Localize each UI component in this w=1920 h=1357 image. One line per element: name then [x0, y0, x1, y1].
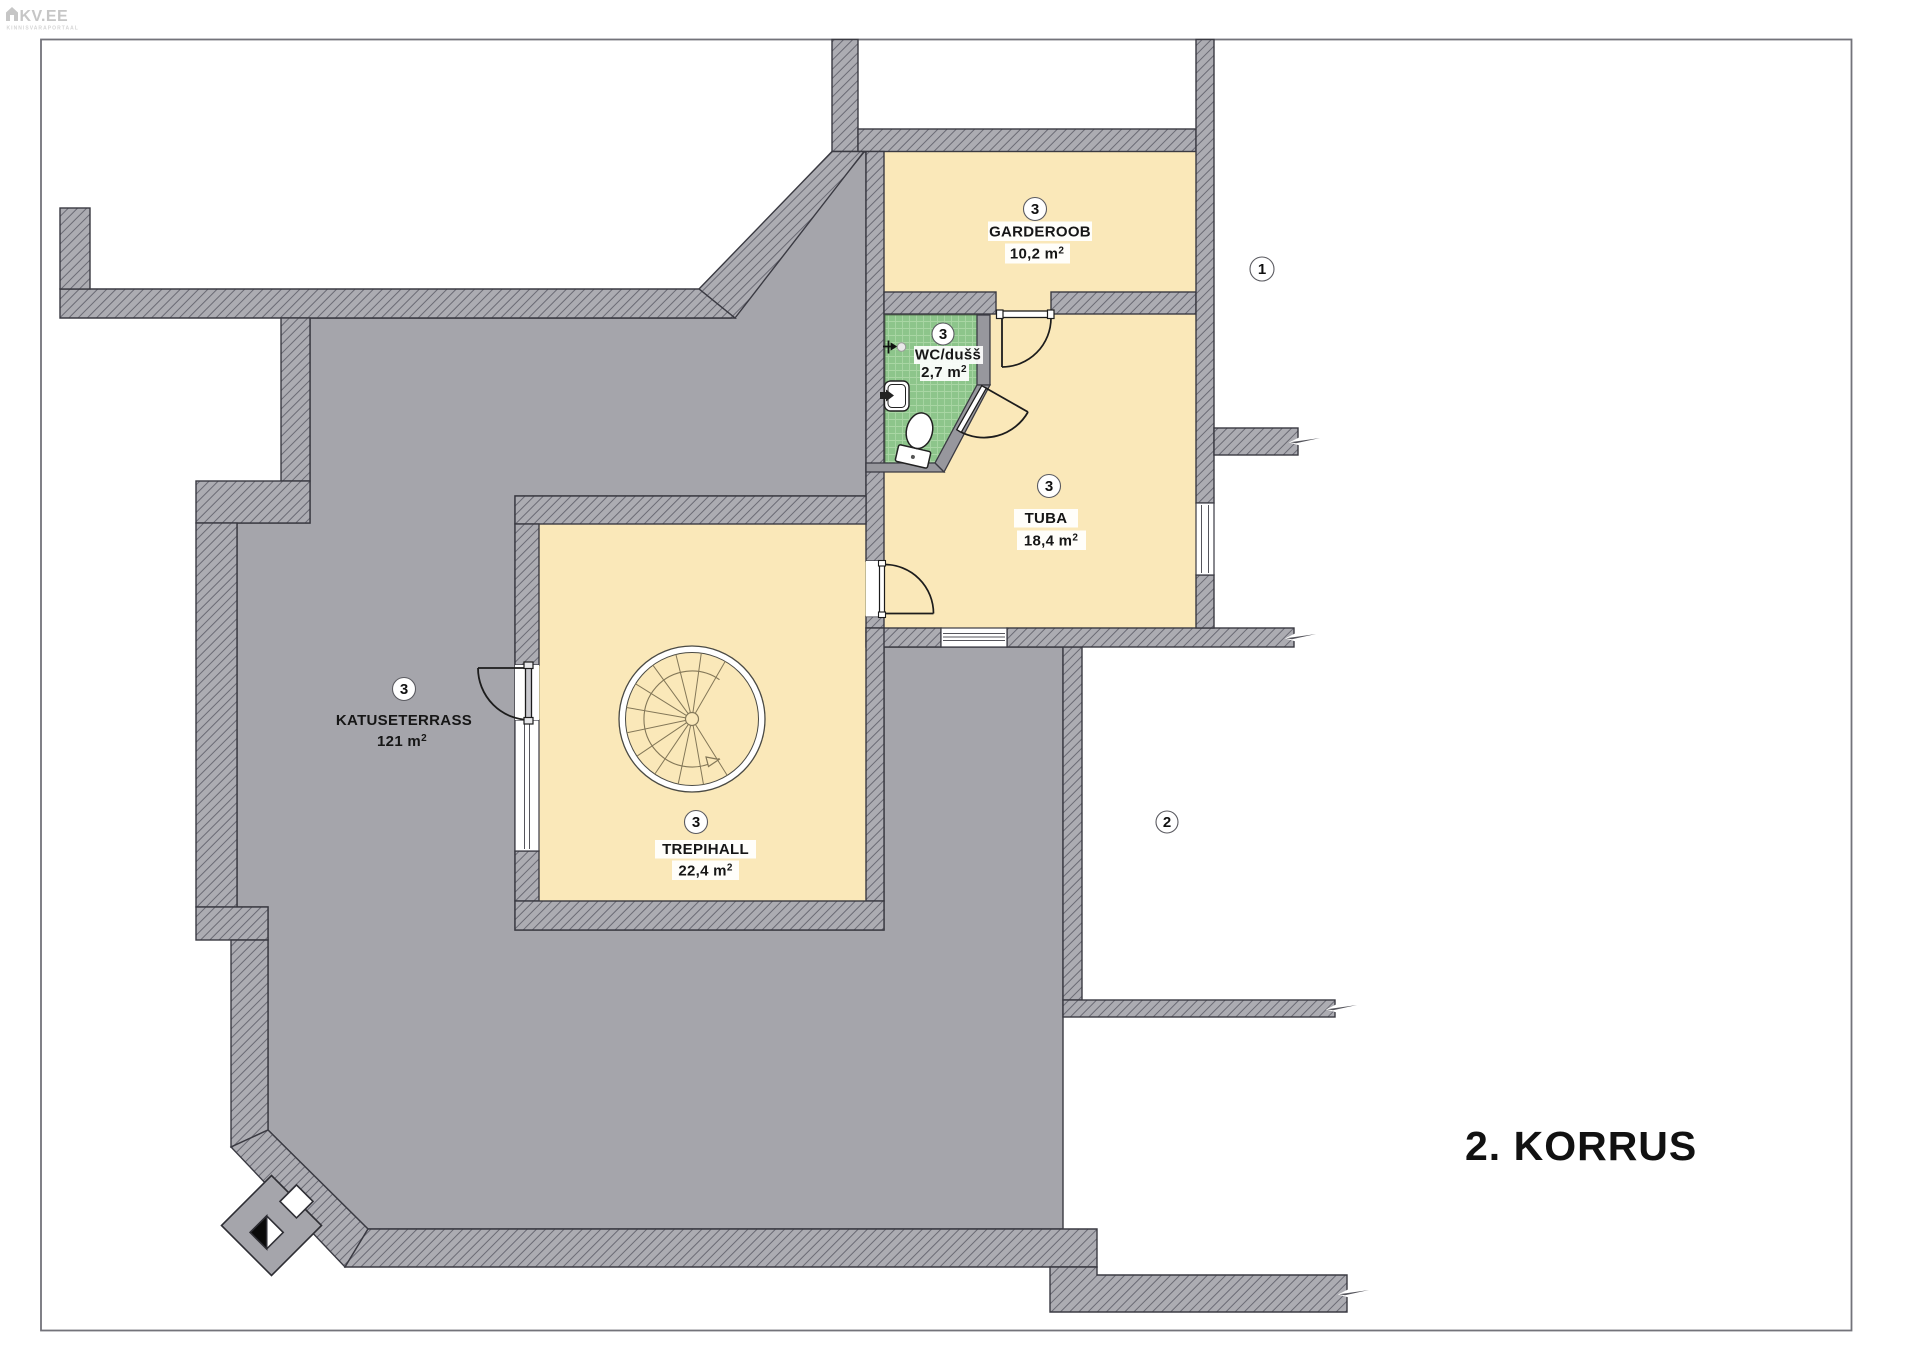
svg-text:KATUSETERRASS: KATUSETERRASS — [336, 712, 472, 729]
svg-text:3: 3 — [400, 681, 408, 698]
svg-text:WC/dušš: WC/dušš — [915, 347, 981, 364]
svg-text:121 m2: 121 m2 — [377, 733, 427, 750]
svg-text:TUBA: TUBA — [1025, 510, 1068, 527]
svg-text:2,7 m2: 2,7 m2 — [921, 364, 967, 381]
svg-text:2. KORRUS: 2. KORRUS — [1465, 1123, 1697, 1169]
svg-text:1: 1 — [1258, 261, 1266, 278]
svg-text:3: 3 — [1031, 201, 1039, 218]
svg-text:TREPIHALL: TREPIHALL — [662, 841, 749, 858]
svg-text:3: 3 — [939, 326, 947, 343]
svg-text:3: 3 — [692, 814, 700, 831]
svg-text:2: 2 — [1163, 814, 1171, 831]
svg-text:3: 3 — [1045, 478, 1053, 495]
svg-text:KINNISVARAPORTAAL: KINNISVARAPORTAAL — [7, 26, 79, 32]
svg-text:KV.EE: KV.EE — [20, 8, 69, 25]
svg-text:22,4 m2: 22,4 m2 — [678, 863, 733, 880]
svg-text:GARDEROOB: GARDEROOB — [989, 224, 1091, 241]
svg-text:10,2 m2: 10,2 m2 — [1010, 246, 1065, 263]
svg-text:18,4 m2: 18,4 m2 — [1024, 533, 1079, 550]
